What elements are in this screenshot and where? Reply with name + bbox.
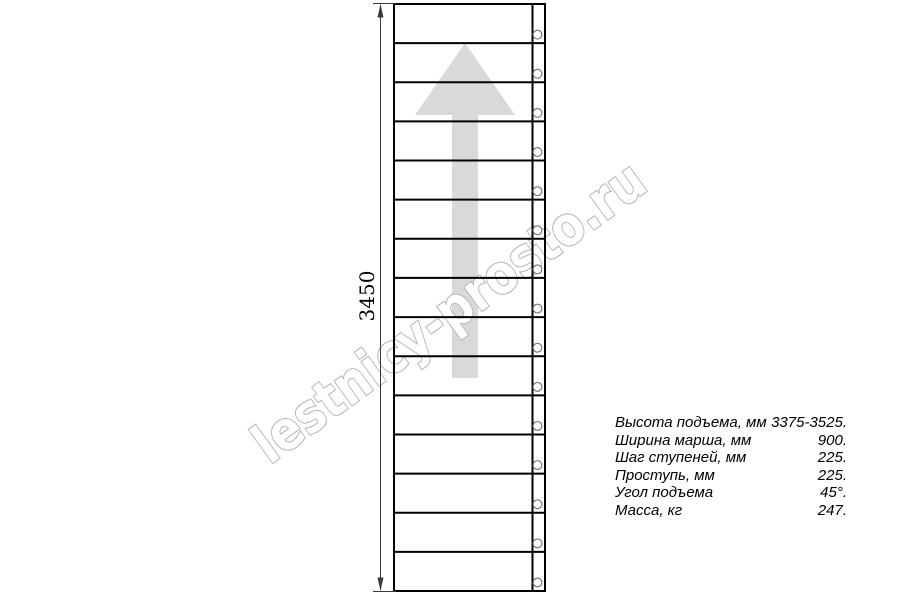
spec-label: Высота подъема, мм: [615, 414, 767, 432]
fastener-circle: [533, 461, 542, 470]
fastener-circle: [533, 148, 542, 157]
spec-row-height: Высота подъема, мм 3375-3525.: [615, 414, 847, 432]
fastener-circle: [533, 578, 542, 587]
spec-row-tread: Проступь, мм 225.: [615, 467, 847, 485]
drawing-canvas: lestnicy-prosto.ru 3450 Высота подъема, …: [0, 0, 900, 600]
fastener-circle: [533, 539, 542, 548]
fastener-circle: [533, 382, 542, 391]
dimension-group: 3450: [355, 4, 396, 592]
spec-value: 45°.: [820, 484, 847, 502]
fastener-circle: [533, 304, 542, 313]
spec-label: Проступь, мм: [615, 467, 715, 485]
fastener-circle: [533, 343, 542, 352]
spec-value: 3375-3525.: [771, 414, 847, 432]
spec-row-angle: Угол подъема 45°.: [615, 484, 847, 502]
spec-value: 247.: [818, 502, 847, 520]
fastener-circle: [533, 30, 542, 39]
spec-value: 900.: [818, 432, 847, 450]
spec-row-mass: Масса, кг 247.: [615, 502, 847, 520]
spec-label: Ширина марша, мм: [615, 432, 751, 450]
specs-table: Высота подъема, мм 3375-3525. Ширина мар…: [615, 414, 847, 520]
watermark-text: lestnicy-prosto.ru: [240, 148, 657, 475]
fastener-circle: [533, 422, 542, 431]
spec-value: 225.: [818, 467, 847, 485]
fastener-circle: [533, 500, 542, 509]
fastener-circle: [533, 187, 542, 196]
dimension-arrowhead-top: [378, 4, 384, 18]
fastener-circle: [533, 226, 542, 235]
spec-row-width: Ширина марша, мм 900.: [615, 432, 847, 450]
dimension-label: 3450: [355, 271, 379, 322]
spec-label: Шаг ступеней, мм: [615, 449, 746, 467]
spec-row-step: Шаг ступеней, мм 225.: [615, 449, 847, 467]
spec-value: 225.: [818, 449, 847, 467]
spec-label: Угол подъема: [615, 484, 713, 502]
spec-label: Масса, кг: [615, 502, 682, 520]
fastener-circle: [533, 265, 542, 274]
fastener-circle: [533, 69, 542, 78]
fastener-circle: [533, 109, 542, 118]
dimension-arrowhead-bottom: [378, 578, 384, 592]
